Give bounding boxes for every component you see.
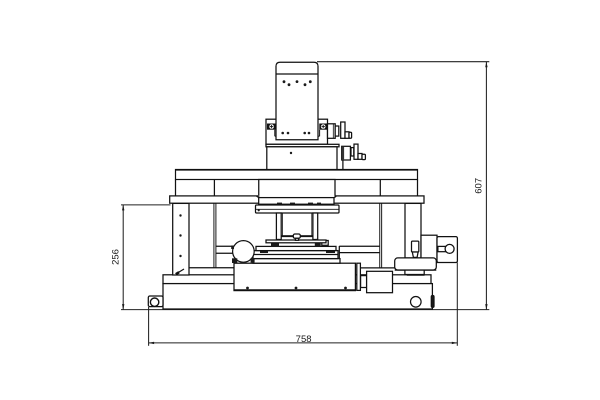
svg-text:607: 607	[473, 178, 484, 194]
svg-text:758: 758	[296, 334, 312, 345]
svg-text:256: 256	[111, 249, 122, 265]
